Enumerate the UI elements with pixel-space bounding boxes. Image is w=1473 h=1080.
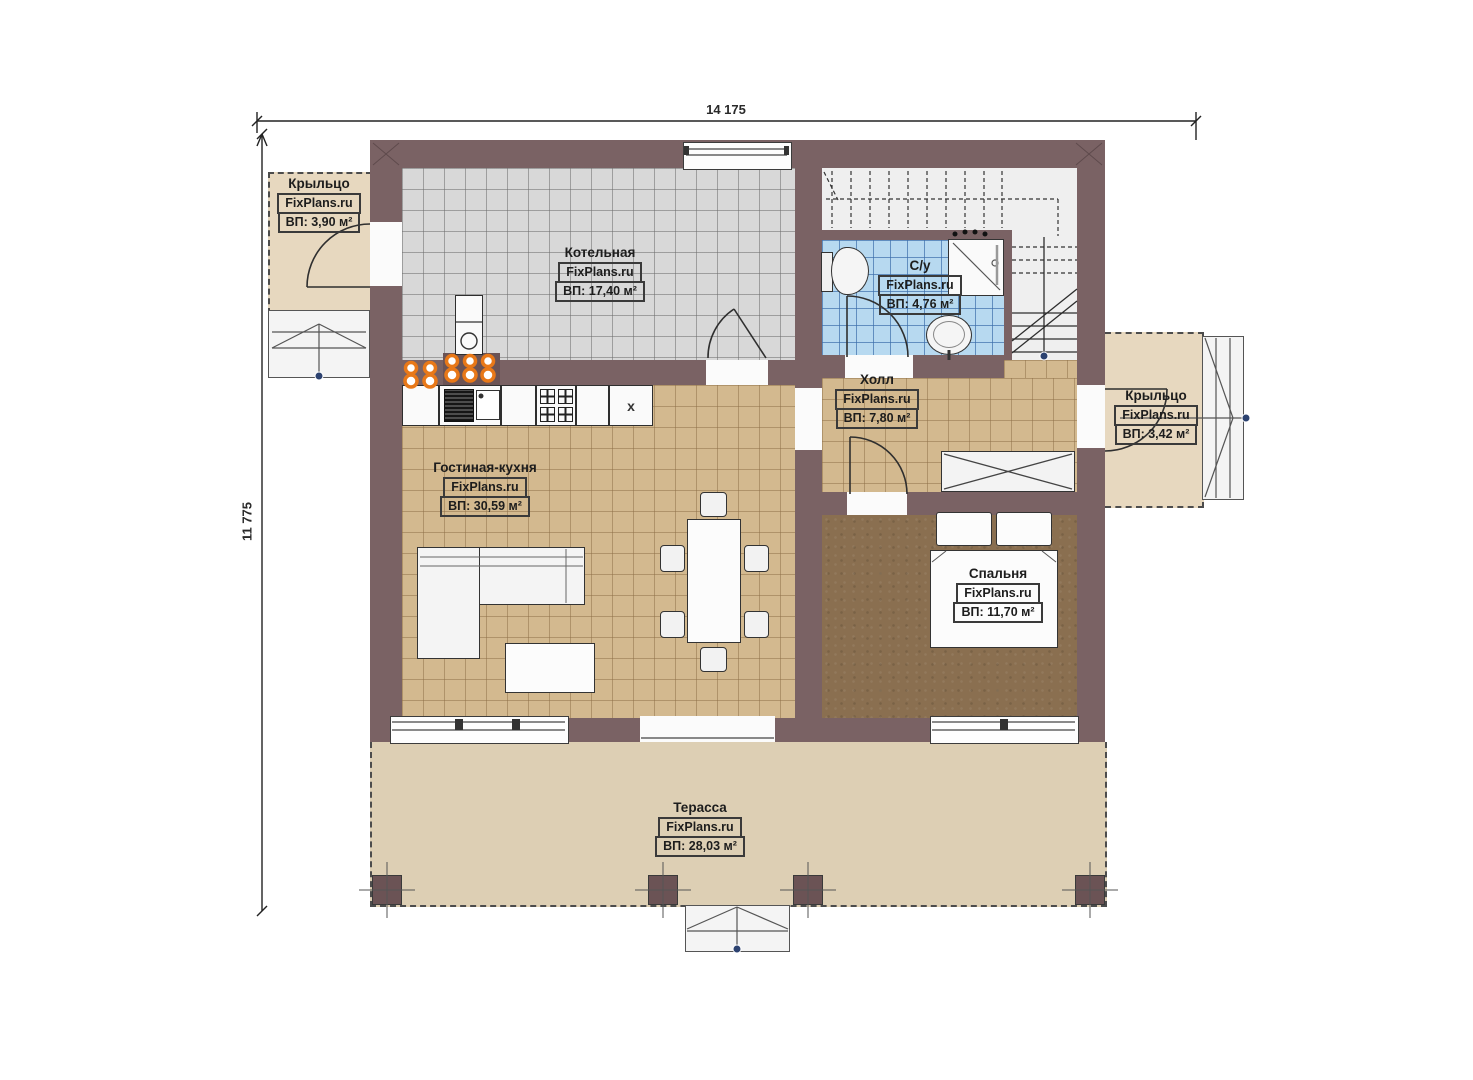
watermark: FixPlans.ru — [878, 275, 961, 296]
room-area: ВП: 30,59 м² — [440, 496, 530, 517]
room-area: ВП: 3,42 м² — [1115, 424, 1198, 445]
room-label-porch-right: Крыльцо FixPlans.ru ВП: 3,42 м² — [1081, 388, 1231, 445]
watermark: FixPlans.ru — [658, 817, 741, 838]
sofa-chaise — [417, 547, 480, 659]
cabinet-cross-symbol: x — [627, 398, 635, 414]
terrace-column — [1075, 875, 1105, 905]
stove-burner — [540, 389, 555, 404]
stove-burner — [558, 407, 573, 422]
room-area: ВП: 11,70 м² — [953, 602, 1042, 623]
room-label-hall: Холл FixPlans.ru ВП: 7,80 м² — [802, 372, 952, 429]
kitchen-cutting-board — [476, 390, 500, 420]
room-label-bedroom: Спальня FixPlans.ru ВП: 11,70 м² — [923, 566, 1073, 623]
hall-floor — [1004, 360, 1077, 378]
floor-plan-canvas: 14 175 11 775 x — [0, 0, 1473, 1080]
terrace-door — [640, 716, 775, 742]
kitchen-cabinet — [501, 385, 536, 426]
watermark: FixPlans.ru — [956, 583, 1039, 604]
room-area: ВП: 3,90 м² — [278, 212, 361, 233]
room-name: Холл — [860, 372, 894, 387]
window-boiler-top — [683, 142, 792, 170]
room-name: Гостиная-кухня — [433, 460, 536, 475]
room-label-bathroom: С/у FixPlans.ru ВП: 4,76 м² — [845, 258, 995, 315]
room-label-living-kitchen: Гостиная-кухня FixPlans.ru ВП: 30,59 м² — [410, 460, 560, 517]
dining-chair — [744, 611, 769, 638]
terrace-column — [793, 875, 823, 905]
dining-chair — [700, 647, 727, 672]
dimension-width-label: 14 175 — [676, 102, 776, 117]
room-label-porch-left: Крыльцо FixPlans.ru ВП: 3,90 м² — [244, 176, 394, 233]
room-label-terrace: Терасса FixPlans.ru ВП: 28,03 м² — [625, 800, 775, 857]
room-name: Терасса — [673, 800, 727, 815]
stove-burner — [558, 389, 573, 404]
bed-pillow — [936, 512, 992, 546]
watermark: FixPlans.ru — [277, 193, 360, 214]
wardrobe — [941, 451, 1075, 492]
room-name: Крыльцо — [288, 176, 349, 191]
door-bedroom — [847, 492, 907, 515]
dining-chair — [660, 545, 685, 572]
watermark: FixPlans.ru — [835, 389, 918, 410]
kitchen-sink-basin — [444, 389, 474, 422]
terrace-steps — [685, 905, 790, 952]
room-area: ВП: 17,40 м² — [555, 281, 645, 302]
window-bedroom-bottom — [930, 716, 1079, 744]
coffee-table — [505, 643, 595, 693]
room-area: ВП: 7,80 м² — [836, 408, 919, 429]
room-label-boiler: Котельная FixPlans.ru ВП: 17,40 м² — [525, 245, 675, 302]
stairwell-upper-floor — [822, 168, 1077, 230]
bed-pillow — [996, 512, 1052, 546]
dining-chair — [700, 492, 727, 517]
room-area: ВП: 28,03 м² — [655, 836, 745, 857]
dining-chair — [744, 545, 769, 572]
room-area: ВП: 4,76 м² — [879, 294, 962, 315]
stove-burner — [540, 407, 555, 422]
boiler-unit — [455, 295, 483, 355]
watermark: FixPlans.ru — [1114, 405, 1197, 426]
room-name: Спальня — [969, 566, 1027, 581]
kitchen-cabinet — [576, 385, 609, 426]
dining-table — [687, 519, 741, 643]
room-name: С/у — [909, 258, 930, 273]
terrace-column — [372, 875, 402, 905]
bathroom-sink-basin — [933, 321, 965, 348]
dining-chair — [660, 611, 685, 638]
porch-left-steps — [268, 310, 370, 378]
watermark: FixPlans.ru — [443, 477, 526, 498]
stairwell-flight-floor — [1012, 230, 1077, 360]
kitchen-cabinet-x: x — [609, 385, 653, 426]
room-name: Крыльцо — [1125, 388, 1186, 403]
watermark: FixPlans.ru — [558, 262, 641, 283]
window-living-bottom — [390, 716, 569, 744]
kitchen-cabinet — [402, 385, 439, 426]
room-name: Котельная — [565, 245, 636, 260]
terrace-column — [648, 875, 678, 905]
dimension-height-label: 11 775 — [240, 472, 255, 572]
radiator-block — [443, 353, 500, 385]
door-boiler-living — [706, 360, 768, 385]
